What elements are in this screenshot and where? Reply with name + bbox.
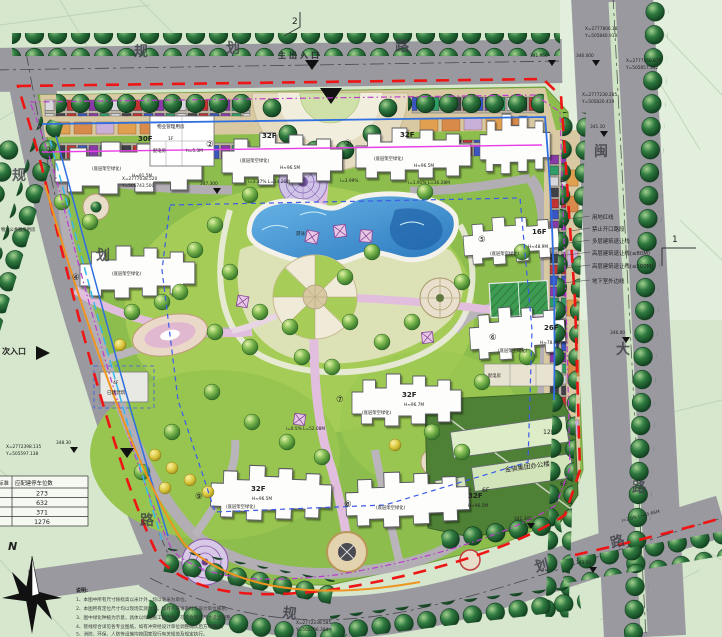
b6-height: H≈78.9M: [540, 340, 560, 346]
b9-height: H≈96.5M: [252, 496, 272, 502]
elev-1: 346.000: [576, 53, 594, 59]
b1-num: ①: [46, 145, 54, 155]
b3-height: H≈96.5M: [414, 163, 434, 169]
elev-2: 341.10: [590, 124, 605, 130]
elev-4: 347.300: [200, 181, 218, 187]
b9-num: ⑨: [195, 492, 203, 502]
b9-floors: 32F: [251, 485, 266, 493]
table-value-0: 273: [36, 491, 48, 498]
b2-floors: 32F: [262, 132, 277, 140]
b7-note: (底层架空绿化): [362, 409, 391, 416]
right-road-char-2: 大: [616, 341, 630, 358]
coord-5y: Y=505706.384: [295, 627, 328, 633]
b5-num: ⑤: [478, 235, 486, 245]
b3-num: ③: [344, 139, 352, 149]
coord-4y: Y=505597.138: [5, 451, 38, 457]
b4-num: ④: [72, 273, 80, 283]
b5-height: H≈48.9M: [528, 244, 548, 250]
b3-floors: 32F: [400, 131, 415, 139]
service-room-label: 物业公共服务用房: [1, 226, 35, 233]
note-4: 4、管线综合详见各专业图纸，如有冲突经设计单位调整确认后方可施工。: [76, 623, 226, 630]
table-value-1: 632: [36, 500, 48, 507]
leader-basement-line: 地下室外边线: [592, 277, 625, 285]
right-road-char-1: 闽: [594, 143, 608, 160]
section-mark-right: 1: [672, 235, 678, 245]
coord-3x: X=2777038.520: [122, 176, 158, 182]
coord-1x: X=2777560.875: [626, 58, 662, 64]
leader-highrise-setback-80: 高层建筑退让线(≤80M): [592, 249, 650, 257]
b4-note: (底层架空绿化): [112, 270, 141, 277]
b2-num: ②: [206, 140, 214, 150]
elev-3: 346.00: [610, 330, 625, 336]
slope-3: i=0.5% L=52.08M: [286, 426, 325, 432]
power-room-label: 配电房: [153, 147, 166, 154]
leader-red-line: 用地红线: [592, 213, 614, 221]
coord-2x: X=2777230.285: [582, 92, 618, 98]
slope-1: i=3.99%: [340, 178, 358, 184]
master-plan-canvas: { "map": { "roads": { "top_name_chars": …: [0, 0, 722, 637]
power-room2-label: 配电房: [488, 372, 501, 379]
slope-2: i=1.91% L=36.28M: [408, 180, 450, 186]
elev-0: 341.950: [530, 53, 548, 59]
office-6f-label-b: 6F: [482, 487, 490, 494]
south-roundabout: [327, 532, 367, 572]
coord-1y: Y=505857.342: [625, 65, 658, 71]
table-value-2: 371: [36, 510, 48, 517]
leader-highrise-setback-100: 高层建筑退让线(≤100M): [592, 262, 653, 270]
right-road-char-3: 路: [632, 479, 647, 496]
b5-note: (底层架空绿化): [490, 250, 519, 257]
top-road-char-3: 路: [395, 38, 410, 55]
b9-note: (底层架空绿化): [226, 503, 255, 510]
note-1: 1、本图中所有尺寸除标高以米计外，均以毫米为单位。: [76, 596, 189, 603]
b6-note: (底层架空绿化): [498, 347, 527, 354]
management-house-floors: 1F: [168, 136, 174, 142]
parking-table: 标准 应配建停车位数 273 632 371 1276: [0, 476, 88, 526]
b8-height: H≈96.5M: [468, 503, 488, 509]
top-road-char-2: 划: [226, 40, 240, 57]
b1-floors: 30F: [138, 135, 153, 143]
coord-0y: Y=505840.918: [584, 33, 617, 39]
elev-5: 343.50: [576, 560, 591, 566]
b8-num: ⑧: [344, 500, 352, 510]
b3-note: (底层架空绿化): [374, 155, 403, 162]
b5-floors: 16F: [532, 228, 547, 236]
elev-7: 348.30: [56, 440, 71, 446]
coord-0x: X=2777806.18: [585, 26, 618, 32]
b7-height: H≈96.7M: [404, 402, 424, 408]
b1-note: (底层架空绿化): [92, 165, 121, 172]
elev-6: 341.345: [514, 516, 532, 522]
coord-2y: Y=505820.419: [581, 99, 614, 105]
left-road-char-1: 规: [12, 168, 26, 184]
note-2: 2、本图所有定位尺寸均以现场实测为准，如有不符请及时与设计单位联系。: [76, 605, 231, 612]
b8-note: (底层架空绿化): [376, 504, 405, 511]
main-entrance-label: 主出入口: [278, 50, 322, 60]
top-road-char-1: 规: [134, 44, 148, 60]
coord-3y: Y=505743.500: [121, 183, 154, 189]
coord-4x: X=2772398.135: [6, 444, 42, 450]
b6-num: ⑥: [489, 333, 497, 343]
table-value-3: 1276: [34, 519, 50, 526]
swimming-pool: 游泳池: [249, 194, 456, 263]
b2-note: (底层架空绿化): [240, 157, 269, 164]
note-3: 3、图中绿化种植为示意，具体以绿化施工图为准，可结合现场尺寸适当调整。: [76, 614, 235, 621]
leader-no-opening: 禁止开口路段: [592, 225, 625, 233]
slope-0: i=3.37% L=14.26M: [248, 179, 290, 185]
management-house-label: 物业管理用房: [157, 123, 185, 130]
b7-num: ⑦: [336, 395, 344, 405]
coord-5x: X=2772238.585: [296, 620, 332, 626]
north-label: N: [8, 540, 17, 553]
notes-heading: 说明:: [76, 587, 88, 594]
management-house-height: h=5.3M: [186, 148, 203, 154]
existing-building-floors: 4F: [113, 380, 119, 386]
left-road-char-3: 路: [140, 512, 155, 529]
section-mark-top: 2: [292, 17, 298, 27]
b8-floors: 32F: [468, 492, 483, 500]
b2-height: H≈96.5M: [280, 165, 300, 171]
table-header-left: 标准: [0, 479, 9, 487]
secondary-entrance-label: 次入口: [2, 346, 26, 356]
left-road-char-2: 划: [96, 247, 110, 264]
b7-floors: 32F: [402, 391, 417, 399]
leader-multistorey-setback: 多层建筑退让线: [592, 237, 630, 245]
existing-building-label: 已建建筑: [107, 389, 126, 396]
b6-floors: 26F: [544, 324, 559, 332]
table-header-right: 应配建停车位数: [15, 479, 53, 487]
site-plan-drawing: 游泳池: [0, 0, 722, 637]
